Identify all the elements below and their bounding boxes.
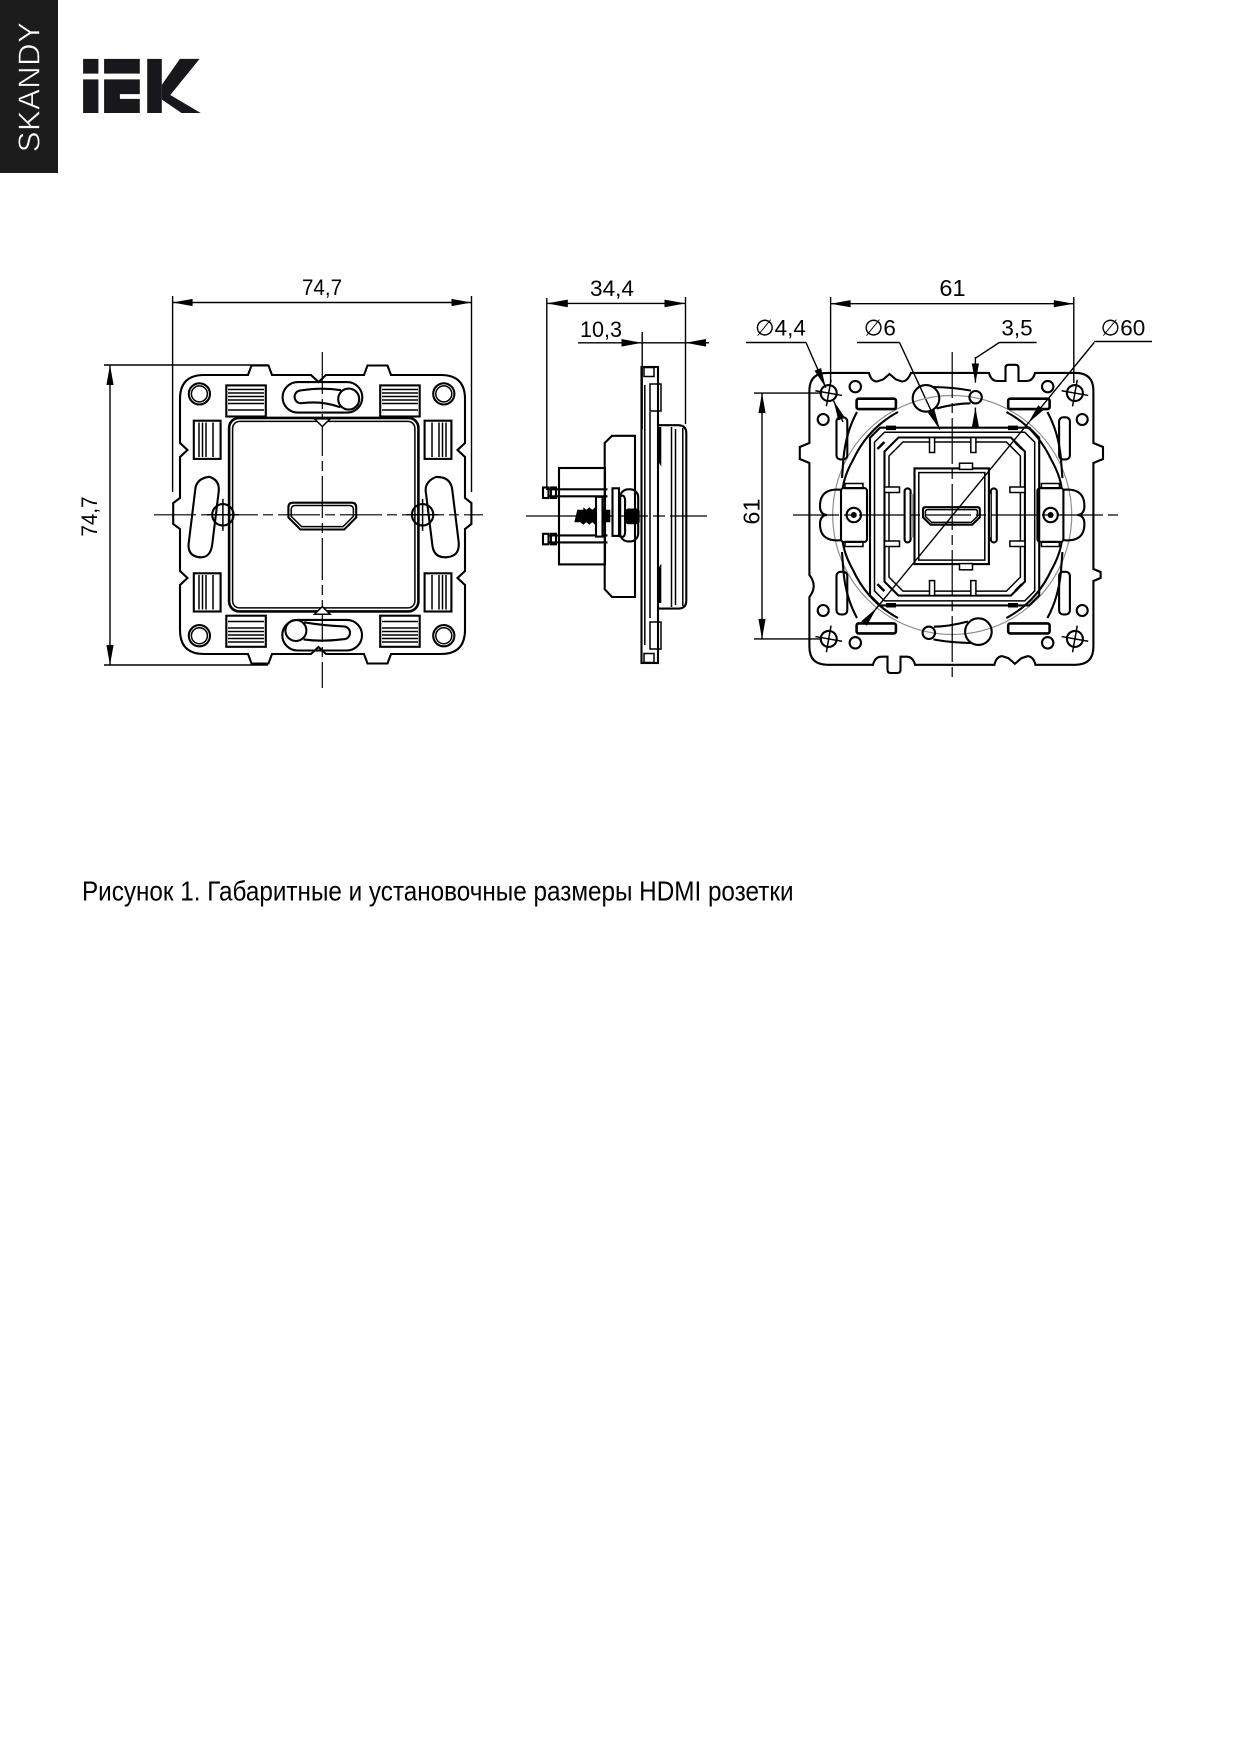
svg-text:61: 61 <box>939 275 965 301</box>
svg-text:3,5: 3,5 <box>1001 316 1032 341</box>
svg-text:SKANDY: SKANDY <box>12 22 47 152</box>
svg-text:Рисунок 1. Габаритные и устано: Рисунок 1. Габаритные и установочные раз… <box>82 876 794 907</box>
svg-text:10,3: 10,3 <box>580 317 622 342</box>
svg-text:74,7: 74,7 <box>77 497 102 537</box>
svg-text:∅4,4: ∅4,4 <box>755 316 806 341</box>
svg-text:61: 61 <box>739 498 765 524</box>
svg-text:∅60: ∅60 <box>1101 316 1146 341</box>
svg-text:34,4: 34,4 <box>590 276 634 301</box>
svg-text:74,7: 74,7 <box>302 275 342 300</box>
svg-text:∅6: ∅6 <box>864 316 896 341</box>
